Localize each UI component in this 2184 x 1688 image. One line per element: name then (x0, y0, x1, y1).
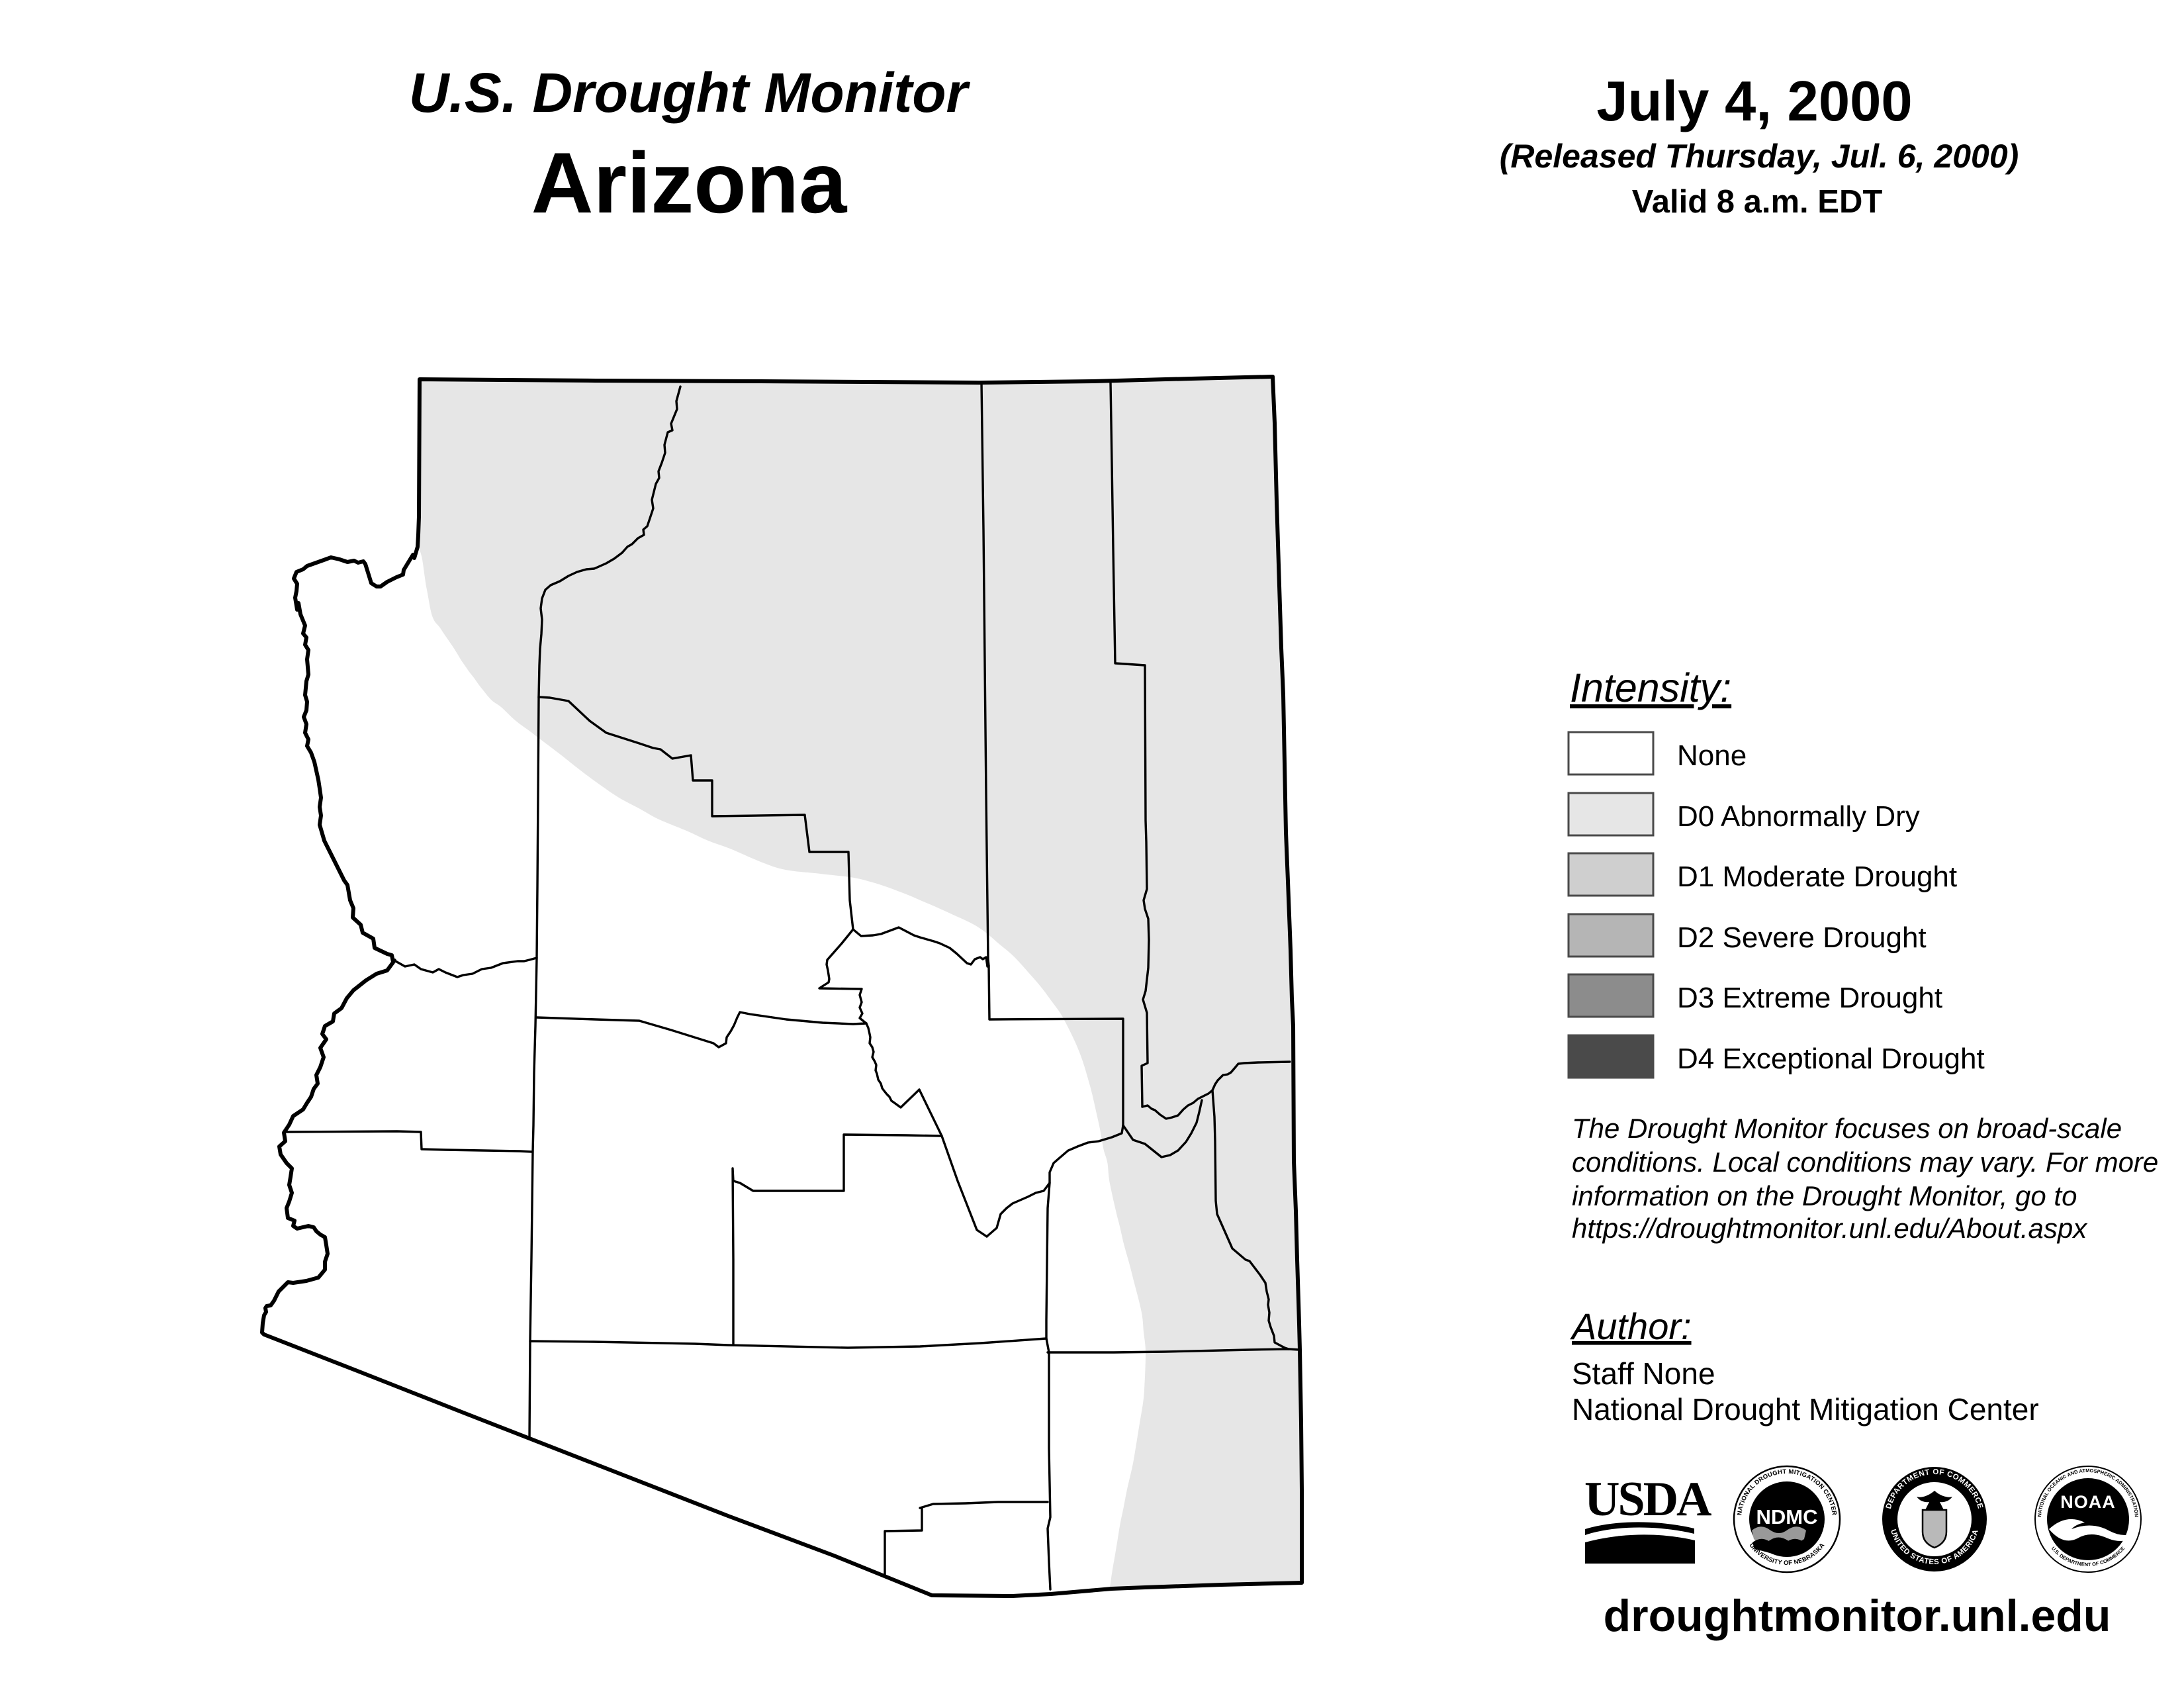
svg-text:★: ★ (1952, 1513, 1962, 1526)
svg-text:Valid 8 a.m. EDT: Valid 8 a.m. EDT (1632, 184, 1883, 220)
svg-text:None: None (1677, 739, 1747, 772)
svg-text:USDA: USDA (1584, 1472, 1711, 1526)
svg-text:D4 Exceptional Drought: D4 Exceptional Drought (1677, 1043, 1985, 1075)
svg-text:Author:: Author: (1570, 1305, 1692, 1347)
svg-text:Staff None: Staff None (1572, 1356, 1715, 1391)
svg-text:D2 Severe Drought: D2 Severe Drought (1677, 921, 1927, 954)
svg-text:Intensity:: Intensity: (1570, 665, 1731, 710)
svg-text:NOAA: NOAA (2060, 1492, 2116, 1512)
svg-text:The Drought Monitor focuses on: The Drought Monitor focuses on broad-sca… (1572, 1113, 2122, 1144)
svg-text:D0 Abnormally Dry: D0 Abnormally Dry (1677, 800, 1920, 833)
svg-text:U.S. Drought Monitor: U.S. Drought Monitor (409, 62, 971, 124)
svg-text:National Drought Mitigation Ce: National Drought Mitigation Center (1572, 1392, 2039, 1427)
svg-text:(Released Thursday, Jul. 6, 20: (Released Thursday, Jul. 6, 2000) (1500, 138, 2019, 175)
svg-text:July 4, 2000: July 4, 2000 (1596, 70, 1912, 133)
svg-text:https://droughtmonitor.unl.edu: https://droughtmonitor.unl.edu/About.asp… (1572, 1213, 2088, 1244)
svg-text:conditions. Local conditions m: conditions. Local conditions may vary. F… (1572, 1147, 2158, 1178)
svg-text:droughtmonitor.unl.edu: droughtmonitor.unl.edu (1604, 1591, 2111, 1641)
svg-text:NDMC: NDMC (1756, 1505, 1818, 1528)
svg-text:D3 Extreme Drought: D3 Extreme Drought (1677, 982, 1942, 1014)
svg-text:★: ★ (1906, 1513, 1917, 1526)
svg-text:Arizona: Arizona (531, 134, 848, 231)
svg-text:D1 Moderate Drought: D1 Moderate Drought (1677, 861, 1957, 893)
svg-text:information on the Drought Mon: information on the Drought Monitor, go t… (1572, 1180, 2077, 1211)
